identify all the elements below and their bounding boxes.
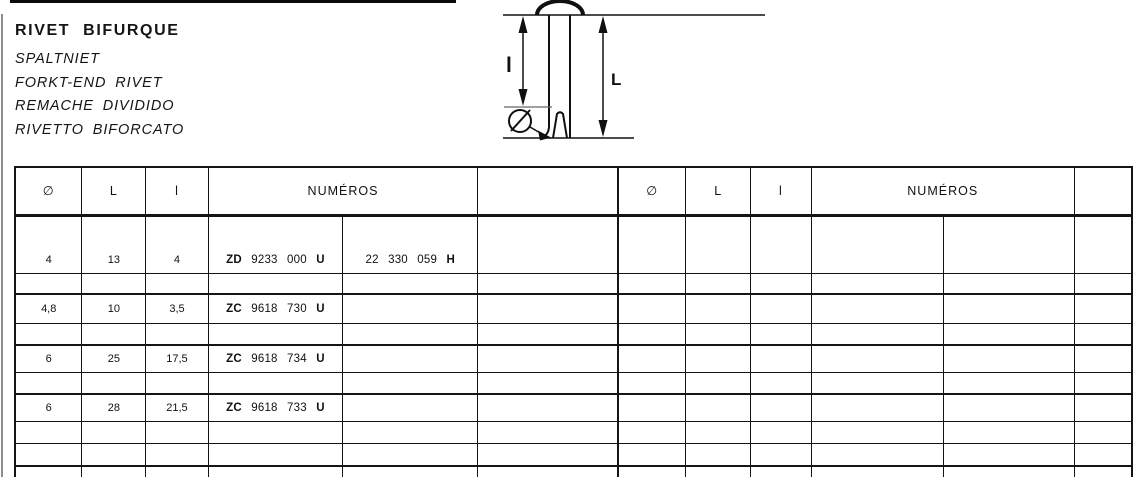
cell-length-total: 28 xyxy=(82,394,146,421)
table-row-spacer xyxy=(15,372,1132,394)
col-header-length-inner: l xyxy=(146,167,208,215)
cell-empty xyxy=(478,294,618,323)
arrow-up-icon xyxy=(599,16,608,33)
cell-empty xyxy=(751,443,812,466)
arrow-up-icon xyxy=(519,16,528,33)
cell-part-number: ZC 9618 733 U xyxy=(208,394,343,421)
cell-empty xyxy=(943,294,1074,323)
cell-empty xyxy=(82,421,146,443)
cell-length-inner: 4 xyxy=(146,215,208,273)
cell-empty xyxy=(343,345,478,372)
cell-length-inner: 3,5 xyxy=(146,294,208,323)
cell-empty xyxy=(478,443,618,466)
cell-empty xyxy=(943,466,1074,477)
cell-empty xyxy=(478,215,618,273)
col-header-numbers: NUMÉROS xyxy=(208,167,478,215)
cell-length-inner: 21,5 xyxy=(146,394,208,421)
cell-empty xyxy=(618,345,686,372)
part-number: ZC 9618 730 U xyxy=(226,303,325,315)
header-cell-empty xyxy=(1074,167,1132,215)
cell-length-inner: 17,5 xyxy=(146,345,208,372)
page-title: RIVET BIFURQUE xyxy=(15,22,184,40)
table-row-spacer xyxy=(15,466,1132,477)
cell-diameter: 4,8 xyxy=(15,294,82,323)
label-total-length: L xyxy=(611,70,621,89)
cell-empty xyxy=(15,372,82,394)
cell-empty xyxy=(686,215,751,273)
cell-empty xyxy=(751,394,812,421)
cell-empty xyxy=(686,294,751,323)
cell-empty xyxy=(343,421,478,443)
cell-empty xyxy=(811,323,943,345)
cell-empty xyxy=(343,294,478,323)
cell-empty xyxy=(811,372,943,394)
cell-empty xyxy=(618,372,686,394)
cell-empty xyxy=(943,443,1074,466)
cell-empty xyxy=(811,394,943,421)
cell-empty xyxy=(618,394,686,421)
table-header-row: ∅LlNUMÉROS∅LlNUMÉROS xyxy=(15,167,1132,215)
page: RIVET BIFURQUE SPALTNIETFORKT-END RIVETR… xyxy=(0,0,1133,477)
cell-empty xyxy=(618,273,686,294)
cell-empty xyxy=(146,466,208,477)
cell-empty xyxy=(343,323,478,345)
cell-empty xyxy=(943,394,1074,421)
cell-part-number: ZC 9618 730 U xyxy=(208,294,343,323)
cell-empty xyxy=(751,215,812,273)
cell-empty xyxy=(343,273,478,294)
table-row-spacer xyxy=(15,443,1132,466)
cell-empty xyxy=(478,372,618,394)
col-header-length-total: L xyxy=(82,167,146,215)
table-row-data: 62821,5ZC 9618 733 U xyxy=(15,394,1132,421)
table-row-data: 4134ZD 9233 000 U22 330 059 H xyxy=(15,215,1132,273)
col-header-numbers: NUMÉROS xyxy=(811,167,1074,215)
cell-empty xyxy=(943,421,1074,443)
cell-empty xyxy=(208,273,343,294)
col-header-length-total: L xyxy=(686,167,751,215)
rivet-fork-notch xyxy=(553,112,567,138)
cell-empty xyxy=(15,273,82,294)
part-number: ZD 9233 000 U xyxy=(226,254,325,266)
cell-empty xyxy=(82,443,146,466)
cell-empty xyxy=(1074,443,1132,466)
cell-empty xyxy=(811,294,943,323)
cell-empty xyxy=(478,273,618,294)
cell-empty xyxy=(146,273,208,294)
cell-empty xyxy=(618,443,686,466)
cell-empty xyxy=(751,421,812,443)
cell-empty xyxy=(686,394,751,421)
table-row-spacer xyxy=(15,421,1132,443)
col-header-diameter: ∅ xyxy=(618,167,686,215)
cell-empty xyxy=(15,323,82,345)
cell-empty xyxy=(1074,345,1132,372)
cell-empty xyxy=(618,215,686,273)
cell-empty xyxy=(811,466,943,477)
cell-empty xyxy=(1074,372,1132,394)
cell-empty xyxy=(146,443,208,466)
cell-empty xyxy=(146,323,208,345)
cell-empty xyxy=(478,323,618,345)
cell-empty xyxy=(751,323,812,345)
cell-empty xyxy=(1074,273,1132,294)
subtitle: RIVETTO BIFORCATO xyxy=(15,119,184,143)
cell-empty xyxy=(751,294,812,323)
cell-diameter: 4 xyxy=(15,215,82,273)
cell-empty xyxy=(343,443,478,466)
cell-empty xyxy=(478,394,618,421)
cell-length-total: 10 xyxy=(82,294,146,323)
cell-empty xyxy=(751,273,812,294)
cell-empty xyxy=(208,443,343,466)
diameter-leader-line xyxy=(530,127,542,134)
cell-length-total: 13 xyxy=(82,215,146,273)
cell-empty xyxy=(15,443,82,466)
cell-empty xyxy=(15,466,82,477)
label-inner-length: l xyxy=(506,54,512,77)
cell-empty xyxy=(82,372,146,394)
cell-empty xyxy=(1074,394,1132,421)
cell-empty xyxy=(146,421,208,443)
cell-empty xyxy=(1074,466,1132,477)
cell-part-number: 22 330 059 H xyxy=(343,215,478,273)
parts-table: ∅LlNUMÉROS∅LlNUMÉROS4134ZD 9233 000 U22 … xyxy=(14,166,1133,477)
cell-empty xyxy=(943,215,1074,273)
cell-empty xyxy=(811,421,943,443)
cell-diameter: 6 xyxy=(15,345,82,372)
cell-empty xyxy=(618,294,686,323)
arrow-down-icon xyxy=(599,120,608,137)
cell-part-number: ZC 9618 734 U xyxy=(208,345,343,372)
cell-empty xyxy=(146,372,208,394)
cell-empty xyxy=(82,273,146,294)
rivet-foot-flare xyxy=(541,126,549,138)
cell-empty xyxy=(811,273,943,294)
subtitle: FORKT-END RIVET xyxy=(15,72,184,96)
cell-empty xyxy=(1074,294,1132,323)
diameter-symbol-icon xyxy=(509,110,531,132)
cell-diameter: 6 xyxy=(15,394,82,421)
cell-empty xyxy=(686,421,751,443)
rivet-head xyxy=(537,1,583,15)
cell-length-total: 25 xyxy=(82,345,146,372)
table-row-data: 62517,5ZC 9618 734 U xyxy=(15,345,1132,372)
cell-empty xyxy=(618,466,686,477)
part-number: ZC 9618 734 U xyxy=(226,353,325,365)
cell-empty xyxy=(751,345,812,372)
cell-empty xyxy=(811,345,943,372)
cell-empty xyxy=(15,421,82,443)
cell-empty xyxy=(1074,323,1132,345)
cell-empty xyxy=(811,215,943,273)
cell-empty xyxy=(343,394,478,421)
cell-empty xyxy=(478,421,618,443)
table-row-spacer xyxy=(15,273,1132,294)
cell-empty xyxy=(943,372,1074,394)
arrow-down-icon xyxy=(519,89,528,106)
cell-empty xyxy=(343,372,478,394)
header-cell-empty xyxy=(478,167,618,215)
page-top-rule xyxy=(10,0,456,3)
cell-empty xyxy=(686,466,751,477)
cell-empty xyxy=(478,345,618,372)
col-header-length-inner: l xyxy=(751,167,812,215)
cell-empty xyxy=(618,323,686,345)
subtitle: SPALTNIET xyxy=(15,48,184,72)
col-header-diameter: ∅ xyxy=(15,167,82,215)
cell-empty xyxy=(686,443,751,466)
cell-empty xyxy=(82,323,146,345)
cell-empty xyxy=(208,421,343,443)
cell-empty xyxy=(1074,421,1132,443)
cell-empty xyxy=(686,372,751,394)
cell-empty xyxy=(208,323,343,345)
cell-empty xyxy=(751,466,812,477)
cell-empty xyxy=(208,372,343,394)
cell-part-number: ZD 9233 000 U xyxy=(208,215,343,273)
title-block: RIVET BIFURQUE SPALTNIETFORKT-END RIVETR… xyxy=(15,22,184,142)
cell-empty xyxy=(686,323,751,345)
cell-empty xyxy=(82,466,146,477)
cell-empty xyxy=(478,466,618,477)
cell-empty xyxy=(618,421,686,443)
subtitle: REMACHE DIVIDIDO xyxy=(15,95,184,119)
cell-empty xyxy=(943,273,1074,294)
cell-empty xyxy=(943,323,1074,345)
table-row-spacer xyxy=(15,323,1132,345)
cell-empty xyxy=(208,466,343,477)
cell-empty xyxy=(1074,215,1132,273)
cell-empty xyxy=(811,443,943,466)
diameter-leader-arrow-icon xyxy=(538,131,551,141)
part-number: ZC 9618 733 U xyxy=(226,402,325,414)
subtitle-list: SPALTNIETFORKT-END RIVETREMACHE DIVIDIDO… xyxy=(15,48,184,142)
part-number: 22 330 059 H xyxy=(366,254,455,266)
cell-empty xyxy=(686,273,751,294)
diameter-symbol-slash xyxy=(511,110,530,131)
cell-empty xyxy=(343,466,478,477)
page-left-rule xyxy=(1,14,3,477)
cell-empty xyxy=(751,372,812,394)
cell-empty xyxy=(686,345,751,372)
cell-empty xyxy=(943,345,1074,372)
table-row-data: 4,8103,5ZC 9618 730 U xyxy=(15,294,1132,323)
